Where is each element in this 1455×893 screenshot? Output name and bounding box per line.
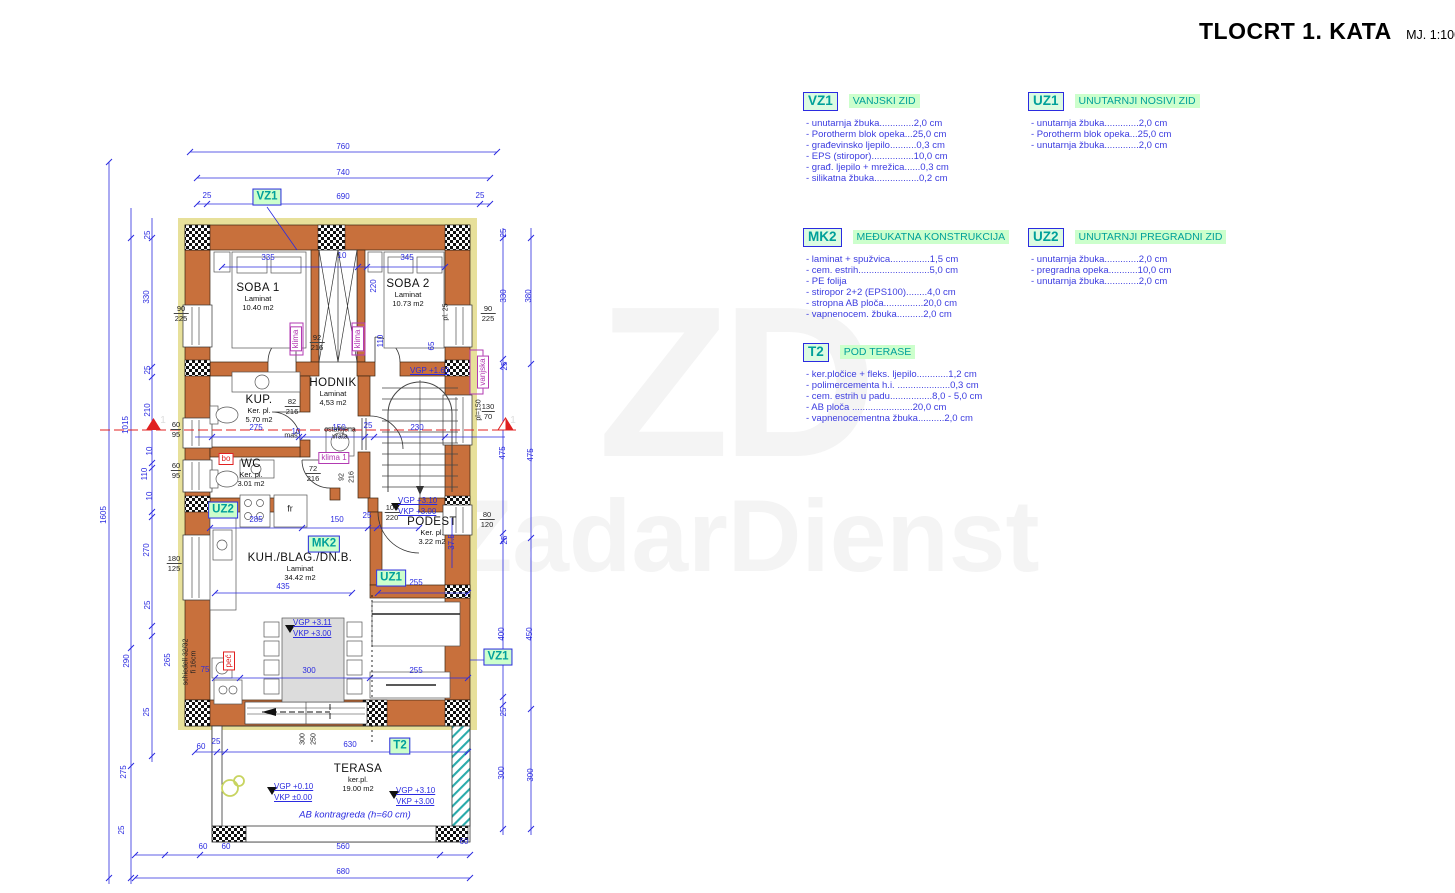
level-label: VGP +0.10VKP ±0.00 — [274, 782, 313, 804]
dimension-label: 60 — [460, 838, 469, 846]
dimension-label: 760 — [336, 143, 349, 151]
wall-opening-label: 90225 — [174, 304, 189, 323]
dimension-label: 65 — [428, 342, 436, 351]
dimension-label: 300 — [498, 766, 506, 779]
dimension-label: 60 — [197, 743, 206, 751]
wall-opening-label: 100220 — [385, 503, 400, 522]
dimension-label: 560 — [336, 843, 349, 851]
dimension-label: 270 — [143, 543, 151, 556]
opening-height: 70 — [482, 411, 495, 421]
small-tag: bo — [219, 453, 234, 465]
room-area: 10.40 m2 — [236, 304, 279, 313]
room-label: HODNIKLaminat4,53 m2 — [309, 377, 356, 407]
small-tag: vanjska — [477, 355, 489, 388]
material-tag-t2: T2 — [389, 738, 410, 755]
dimension-label: 25 — [144, 231, 152, 240]
dimension-label: 10 — [146, 492, 154, 501]
opening-width: 82 — [285, 397, 300, 406]
dimension-label: 450 — [526, 627, 534, 640]
opening-height: 95 — [171, 429, 181, 439]
opening-width: 60 — [171, 461, 181, 470]
vertical-label: pl=150 — [476, 399, 483, 420]
level-line: VKP +3.00 — [396, 797, 435, 808]
dimension-label: 110 — [141, 468, 149, 481]
vertical-label: fi 16cm — [191, 651, 198, 674]
opening-width: 72 — [306, 464, 321, 473]
note-label: 1 — [160, 416, 166, 426]
small-tag: klima 1 — [318, 452, 349, 464]
material-tag-mk2: MK2 — [308, 536, 340, 553]
dimension-label: 25 — [144, 366, 152, 375]
dimension-label: 25 — [364, 422, 373, 430]
room-area: 34.42 m2 — [248, 574, 353, 583]
dimension-label: 220 — [370, 279, 378, 292]
dimension-label: 255 — [409, 579, 422, 587]
note-label: ostakljena — [324, 427, 356, 434]
dimension-label: 300 — [302, 667, 315, 675]
level-line: VKP +3.00 — [293, 629, 332, 640]
dimension-label: 25 — [476, 192, 485, 200]
vertical-label: 300 — [300, 733, 307, 745]
wall-opening-label: 13070 — [482, 402, 495, 421]
level-line: VGP +3.10 — [398, 496, 437, 507]
level-line: VKP +3.00 — [398, 507, 437, 518]
dimension-label: 475 — [499, 446, 507, 459]
dimension-label: 1605 — [100, 506, 108, 524]
dimension-label: 335 — [261, 254, 274, 262]
dimension-label: 60 — [222, 843, 231, 851]
dimension-label: 10 — [146, 447, 154, 456]
dimension-label: 300 — [527, 768, 535, 781]
dimension-label: 680 — [336, 868, 349, 876]
dimension-label: 330 — [500, 289, 508, 302]
opening-width: 92 — [310, 333, 325, 342]
dimension-label: 380 — [525, 289, 533, 302]
room-area: 19.00 m2 — [334, 785, 382, 794]
level-label: VGP +3.10VKP +3.00 — [396, 786, 435, 808]
dimension-label: 25 — [501, 362, 509, 371]
dimension-label: 740 — [336, 169, 349, 177]
wall-opening-label: 6095 — [171, 420, 181, 439]
level-line: VGP +3.10 — [396, 786, 435, 797]
dimension-label: 1015 — [122, 416, 130, 434]
room-label: SOBA 2Laminat10.73 m2 — [386, 278, 429, 308]
small-tag: klima — [352, 327, 364, 352]
room-area: 3.01 m2 — [237, 480, 264, 489]
note-label: 1 — [510, 416, 516, 426]
level-label: VGP +3.11VKP +3.00 — [293, 618, 332, 640]
dimension-label: 290 — [123, 654, 131, 667]
opening-height: 216 — [285, 406, 300, 416]
material-tag-vz1: VZ1 — [483, 649, 512, 666]
floorplan-page: ZD ZadarDienst — [0, 0, 1455, 893]
dimension-label: 435 — [276, 583, 289, 591]
wall-opening-label: 80120 — [480, 510, 495, 529]
dimension-label: 110 — [377, 335, 385, 348]
dimension-label: 75 — [201, 666, 210, 674]
vertical-label: pl. 25 — [443, 303, 450, 320]
note-label: vrata — [332, 434, 348, 441]
dimension-label: 630 — [343, 741, 356, 749]
dimension-label: 37.5 — [448, 534, 456, 550]
opening-height: 225 — [174, 313, 189, 323]
dimension-label: 60 — [199, 843, 208, 851]
level-line: VKP ±0.00 — [274, 793, 313, 804]
room-area: 10.73 m2 — [386, 300, 429, 309]
dimension-label: 25 — [143, 708, 151, 717]
small-tag: peć — [223, 652, 235, 671]
room-label: WCKer. pl.3.01 m2 — [237, 458, 264, 488]
dimension-label: 265 — [164, 653, 172, 666]
dimension-label: 255 — [409, 667, 422, 675]
room-area: 4,53 m2 — [309, 399, 356, 408]
dimension-label: 400 — [498, 627, 506, 640]
dimension-label: 275 — [249, 424, 262, 432]
material-tag-uz1: UZ1 — [376, 570, 406, 587]
dimension-label: 25 — [203, 192, 212, 200]
level-label: VGP +1.60 — [410, 366, 449, 377]
level-line: VGP +0.10 — [274, 782, 313, 793]
wall-opening-label: 90225 — [481, 304, 496, 323]
opening-height: 225 — [481, 313, 496, 323]
opening-width: 80 — [480, 510, 495, 519]
vertical-label: 250 — [311, 733, 318, 745]
room-label: KUH./BLAG./DN.B.Laminat34.42 m2 — [248, 552, 353, 582]
opening-height: 95 — [171, 470, 181, 480]
opening-height: 120 — [480, 519, 495, 529]
dimension-label: 285 — [249, 516, 262, 524]
dimension-label: 25 — [500, 708, 508, 717]
room-label: KUP.Ker. pl.5.70 m2 — [245, 394, 272, 424]
room-label: SOBA 1Laminat10.40 m2 — [236, 282, 279, 312]
note-label: AB kontragreda (h=60 cm) — [299, 810, 411, 820]
dimension-label: 230 — [410, 424, 423, 432]
dimension-label: 475 — [527, 448, 535, 461]
opening-width: 60 — [171, 420, 181, 429]
dimension-label: 25 — [118, 826, 126, 835]
room-label: TERASAker.pl.19.00 m2 — [334, 763, 382, 793]
wall-opening-label: 92216 — [310, 333, 325, 352]
dimension-label: 210 — [144, 403, 152, 416]
dimension-label: 690 — [336, 193, 349, 201]
wall-opening-label: 82216 — [285, 397, 300, 416]
opening-width: 90 — [481, 304, 496, 313]
wall-opening-label: 72216 — [306, 464, 321, 483]
dimension-label: 330 — [143, 290, 151, 303]
material-tag-vz1: VZ1 — [252, 189, 281, 206]
wall-opening-label: 6095 — [171, 461, 181, 480]
material-tag-uz2: UZ2 — [208, 502, 238, 519]
vertical-label: schiedell 32/32 — [183, 639, 190, 686]
small-tag: klima — [290, 327, 302, 352]
wall-opening-label: 180125 — [167, 554, 182, 573]
dimension-label: 25 — [363, 512, 372, 520]
dimension-label: 150 — [330, 516, 343, 524]
dimension-label: 25 — [144, 601, 152, 610]
plan-labels: SOBA 1Laminat10.40 m2SOBA 2Laminat10.73 … — [0, 0, 1455, 893]
vertical-label: 92 — [339, 473, 346, 481]
dimension-label: 25 — [500, 229, 508, 238]
note-label: maš — [284, 433, 297, 440]
opening-width: 130 — [482, 402, 495, 411]
level-line: VGP +3.11 — [293, 618, 332, 629]
level-line: VGP +1.60 — [410, 366, 449, 377]
dimension-label: 25 — [212, 738, 221, 746]
opening-height: 216 — [310, 342, 325, 352]
dimension-label: 10 — [338, 252, 347, 260]
opening-height: 125 — [167, 563, 182, 573]
opening-height: 220 — [385, 512, 400, 522]
level-label: VGP +3.10VKP +3.00 — [398, 496, 437, 518]
opening-width: 100 — [385, 503, 400, 512]
opening-width: 90 — [174, 304, 189, 313]
dimension-label: 275 — [120, 765, 128, 778]
note-label: fr — [287, 505, 293, 514]
vertical-label: 216 — [349, 471, 356, 483]
opening-width: 180 — [167, 554, 182, 563]
dimension-label: 345 — [400, 254, 413, 262]
dimension-label: 25 — [501, 536, 509, 545]
opening-height: 216 — [306, 473, 321, 483]
